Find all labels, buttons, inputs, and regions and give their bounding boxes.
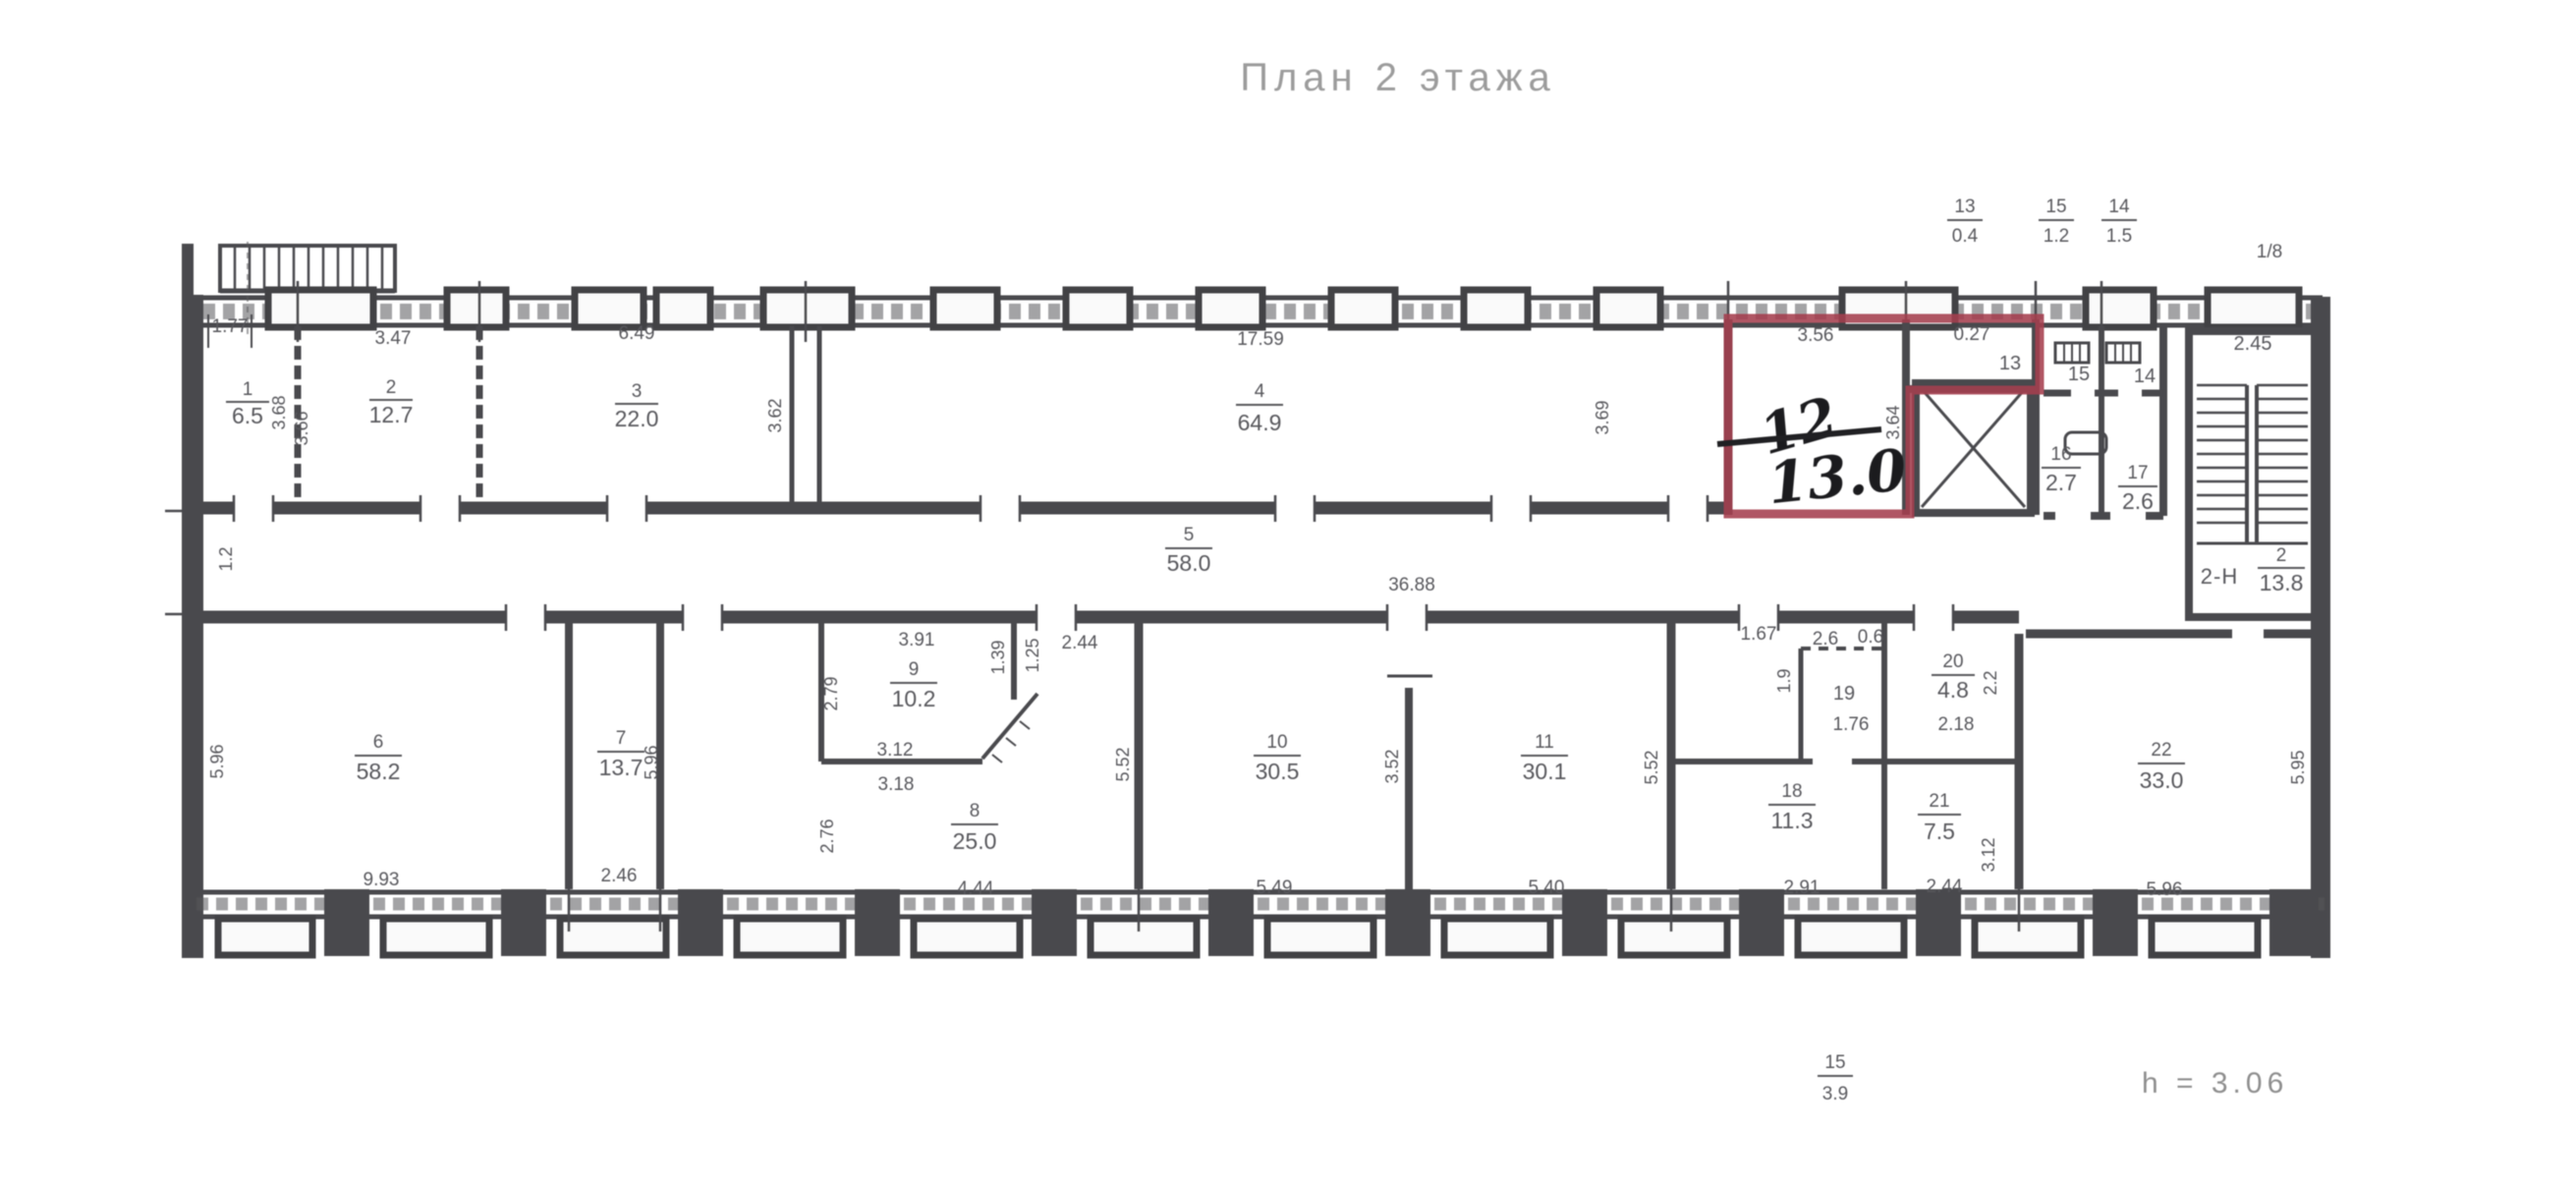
dim-label: 17.59: [1237, 329, 1284, 350]
dim-label: 3.56: [1798, 325, 1834, 346]
room-label-2: 212.7: [369, 377, 414, 427]
dim-label: 3.68: [269, 395, 289, 429]
dim-label: 3.47: [375, 328, 412, 349]
room-number-19: 19: [1833, 683, 1855, 705]
room-area: 30.1: [1523, 759, 1567, 784]
dim-label: 0.27: [1954, 324, 1990, 345]
note-area: 1.5: [2106, 226, 2132, 247]
dim-label: 3.69: [1593, 400, 1612, 434]
bathroom-fixtures: [2055, 343, 2140, 454]
room-number: 21: [1929, 791, 1949, 812]
room-label-8: 825.0: [951, 801, 998, 854]
room-area: 13.7: [599, 755, 644, 780]
dim-label: 2.44: [1927, 876, 1963, 897]
dim-label: 3.64: [1883, 405, 1903, 439]
room-area: 2.6: [2122, 488, 2154, 514]
unit-name: 2-Н: [2201, 564, 2238, 589]
stairwell-area: 2.45: [2234, 333, 2272, 355]
handwritten-area: 13.0: [1764, 436, 1910, 517]
room-number: 8: [970, 801, 980, 821]
room-area: 10.2: [892, 686, 936, 711]
dim-label: 1.77: [212, 316, 249, 337]
bottom-note-15: 153.9: [1818, 1052, 1853, 1104]
room-number: 17: [2127, 463, 2148, 483]
room-area: 64.9: [1238, 410, 1282, 435]
room-number: 10: [1266, 732, 1287, 753]
room-number: 6: [373, 732, 384, 753]
dim-label: 4.44: [958, 878, 994, 899]
room-label-10: 1030.5: [1254, 732, 1301, 784]
scale-note: 1/8: [2257, 242, 2282, 262]
room-area: 25.0: [953, 828, 997, 854]
room-number: 18: [1781, 781, 1802, 802]
room-area: 6.5: [232, 403, 263, 428]
unit-number: 2: [2276, 545, 2287, 566]
dim-label: 2.18: [1938, 714, 1975, 735]
dim-label: 5.52: [1113, 747, 1133, 781]
room-number: 3: [632, 381, 643, 402]
room-label-1: 16.5: [226, 379, 269, 428]
dim-label: 3.52: [1382, 749, 1402, 783]
note-number: 14: [2108, 197, 2130, 217]
upper-note-15: 151.2: [2039, 197, 2074, 247]
outer-walls: [182, 244, 2330, 958]
dim-label: 5.96: [207, 744, 227, 778]
unit-label-2n: 2-Н 2 13.8: [2201, 545, 2305, 595]
dim-label: 2.76: [817, 818, 837, 853]
dim-label: 6.49: [619, 323, 655, 344]
note-area: 1.2: [2044, 226, 2069, 247]
dim-label: 2.6: [1813, 629, 1838, 649]
room-label-7: 713.7: [597, 728, 644, 780]
dim-label: 1.67: [1741, 624, 1777, 645]
dim-label: 2.46: [601, 866, 638, 886]
room-number: 11: [1535, 732, 1554, 753]
room-number-13: 13: [1999, 353, 2021, 374]
floor-plan-canvas: План 2 этажа: [0, 0, 2576, 1185]
room-area: 7.5: [1924, 818, 1955, 844]
room-area: 4.8: [1937, 677, 1969, 703]
handwritten-room-value: 12 13.0: [1717, 384, 1910, 517]
dim-label: 1.25: [1023, 638, 1042, 672]
dim-label: 2.44: [1062, 633, 1098, 653]
room-label-5-corridor: 558.0: [1165, 525, 1212, 576]
room-number-15: 15: [2068, 364, 2090, 385]
dim-label: 2.91: [1784, 877, 1820, 898]
room-label-6: 658.2: [355, 732, 402, 784]
upper-note-14: 141.5: [2101, 197, 2137, 247]
room-number: 5: [1184, 525, 1195, 545]
room-number: 1: [243, 379, 253, 400]
room-area: 2.7: [2045, 470, 2077, 495]
dim-label: 5.95: [2288, 750, 2308, 784]
dim-label: 5.52: [1642, 750, 1661, 784]
ceiling-height-note: h = 3.06: [2142, 1067, 2288, 1100]
dim-label: 3.62: [765, 398, 785, 432]
upper-note-13: 130.4: [1947, 197, 1983, 247]
dim-label: 5.49: [1257, 877, 1293, 898]
room-label-9: 910.2: [890, 659, 937, 711]
lower-partitions: [569, 617, 2319, 931]
room-number: 9: [909, 659, 920, 680]
room-label-18: 1811.3: [1768, 781, 1816, 833]
dim-label: 1.39: [988, 640, 1008, 674]
dim-label: 5.96: [642, 745, 661, 779]
room-number: 4: [1255, 381, 1265, 402]
room-label-21: 217.5: [1918, 791, 1961, 844]
room-label-11: 1130.1: [1521, 732, 1568, 784]
room-number: 22: [2151, 740, 2171, 761]
room-number: 16: [2050, 444, 2071, 465]
dim-label: 36.88: [1388, 575, 1435, 595]
note-area: 3.9: [1822, 1084, 1848, 1104]
note-area: 0.4: [1952, 226, 1979, 247]
dim-label: 9.93: [364, 870, 400, 890]
dim-label: 3.12: [1979, 837, 1998, 872]
dim-label: 2.79: [821, 676, 841, 710]
room-area: 12.7: [369, 402, 414, 427]
dim-label: 2.2: [1981, 670, 2000, 695]
dim-label: 5.40: [1529, 877, 1565, 898]
scanned-floor-plan-sheet: План 2 этажа: [0, 0, 2576, 1185]
room-number-14: 14: [2134, 366, 2156, 387]
unit-area: 13.8: [2260, 570, 2304, 595]
dim-label: 1.2: [216, 546, 236, 571]
room-area: 58.0: [1167, 550, 1211, 576]
room-label-16: 162.7: [2042, 444, 2081, 495]
dim-label: 1.9: [1774, 668, 1794, 693]
dim-label: 3.12: [877, 740, 914, 761]
dimension-labels-vertical: 3.68 3.66 3.62 3.69 3.64 5.96 5.96 2.79 …: [207, 395, 2308, 872]
room-label-22: 2233.0: [2138, 740, 2185, 793]
room-area: 30.5: [1256, 759, 1300, 784]
room-area: 58.2: [357, 759, 401, 784]
dim-label: 3.66: [292, 411, 311, 445]
dim-label: 5.96: [2147, 879, 2183, 900]
room-number: 2: [386, 377, 397, 398]
note-number: 13: [1954, 197, 1975, 217]
dim-label: 0.6: [1858, 627, 1883, 648]
room-area: 22.0: [615, 406, 659, 431]
dim-label: 3.91: [899, 630, 935, 650]
room-area: 33.0: [2140, 767, 2184, 793]
note-number: 15: [1824, 1052, 1845, 1073]
room-number: 7: [616, 728, 627, 749]
dim-label: 3.18: [878, 774, 915, 795]
room-label-4: 464.9: [1236, 381, 1283, 435]
room-number: 20: [1942, 651, 1963, 672]
room-label-17: 172.6: [2118, 463, 2157, 514]
room-area: 11.3: [1770, 808, 1813, 833]
room-label-3: 322.0: [615, 381, 659, 431]
elevator-shaft: [1916, 383, 2031, 513]
note-number: 15: [2045, 197, 2066, 217]
dim-label: 1.76: [1833, 714, 1870, 735]
room-label-20: 204.8: [1932, 651, 1975, 703]
plan-title: План 2 этажа: [1240, 56, 1556, 99]
